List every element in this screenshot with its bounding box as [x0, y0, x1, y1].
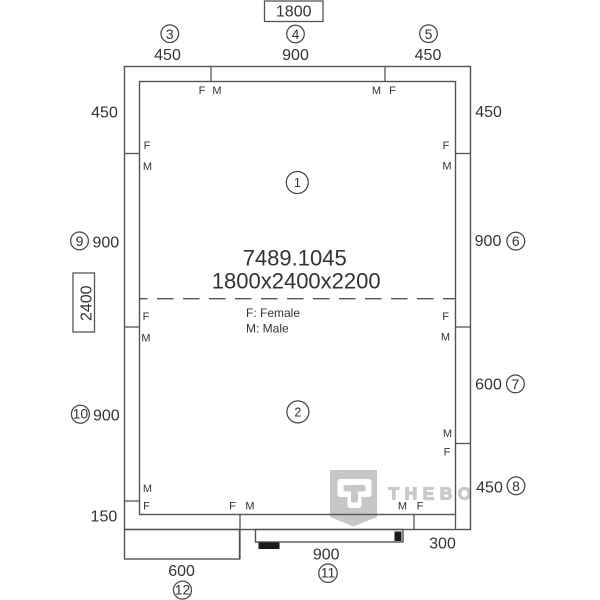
- svg-text:450: 450: [91, 104, 118, 121]
- svg-text:F: F: [444, 447, 451, 459]
- svg-text:F: F: [442, 311, 449, 323]
- svg-text:F: F: [229, 501, 236, 513]
- svg-text:5: 5: [425, 26, 433, 42]
- svg-text:7489.1045: 7489.1045: [243, 245, 347, 270]
- svg-text:F: F: [389, 85, 396, 97]
- svg-text:900: 900: [313, 547, 340, 564]
- svg-text:600: 600: [475, 376, 502, 393]
- svg-text:11: 11: [321, 565, 336, 581]
- svg-text:M: M: [398, 501, 407, 513]
- svg-text:F: F: [143, 311, 150, 323]
- svg-text:F: Female: F: Female: [246, 306, 300, 320]
- svg-text:2400: 2400: [78, 285, 95, 321]
- svg-text:F: F: [199, 85, 206, 97]
- svg-text:F: F: [143, 501, 150, 513]
- svg-text:M: M: [212, 85, 221, 97]
- svg-text:6: 6: [512, 233, 520, 249]
- svg-text:2: 2: [294, 405, 301, 419]
- svg-text:M: M: [245, 501, 254, 513]
- svg-text:F: F: [144, 140, 151, 152]
- svg-text:9: 9: [76, 233, 84, 249]
- svg-text:F: F: [417, 501, 424, 513]
- svg-text:450: 450: [475, 104, 502, 121]
- svg-text:1800: 1800: [276, 3, 312, 20]
- svg-text:150: 150: [91, 509, 118, 526]
- svg-text:M: M: [143, 161, 152, 173]
- svg-text:900: 900: [92, 235, 119, 252]
- svg-text:600: 600: [168, 563, 195, 580]
- svg-text:900: 900: [282, 47, 309, 64]
- svg-text:450: 450: [415, 47, 442, 64]
- svg-text:M: M: [141, 333, 150, 345]
- svg-text:450: 450: [476, 480, 503, 497]
- svg-text:900: 900: [475, 233, 502, 250]
- svg-text:7: 7: [512, 376, 520, 392]
- svg-text:M: M: [143, 483, 152, 495]
- svg-text:12: 12: [175, 582, 191, 598]
- svg-text:900: 900: [93, 408, 120, 425]
- svg-text:M: M: [372, 85, 381, 97]
- svg-text:M: M: [441, 332, 450, 344]
- svg-text:1800x2400x2200: 1800x2400x2200: [212, 268, 381, 293]
- svg-text:300: 300: [429, 536, 456, 553]
- svg-text:4: 4: [292, 26, 300, 42]
- svg-text:M: Male: M: Male: [246, 322, 289, 336]
- svg-text:450: 450: [154, 47, 181, 64]
- svg-text:1: 1: [294, 176, 301, 190]
- svg-text:M: M: [443, 428, 452, 440]
- svg-text:10: 10: [73, 406, 89, 422]
- svg-text:F: F: [443, 140, 450, 152]
- svg-text:8: 8: [512, 478, 520, 494]
- svg-text:3: 3: [166, 26, 174, 42]
- svg-text:M: M: [442, 161, 451, 173]
